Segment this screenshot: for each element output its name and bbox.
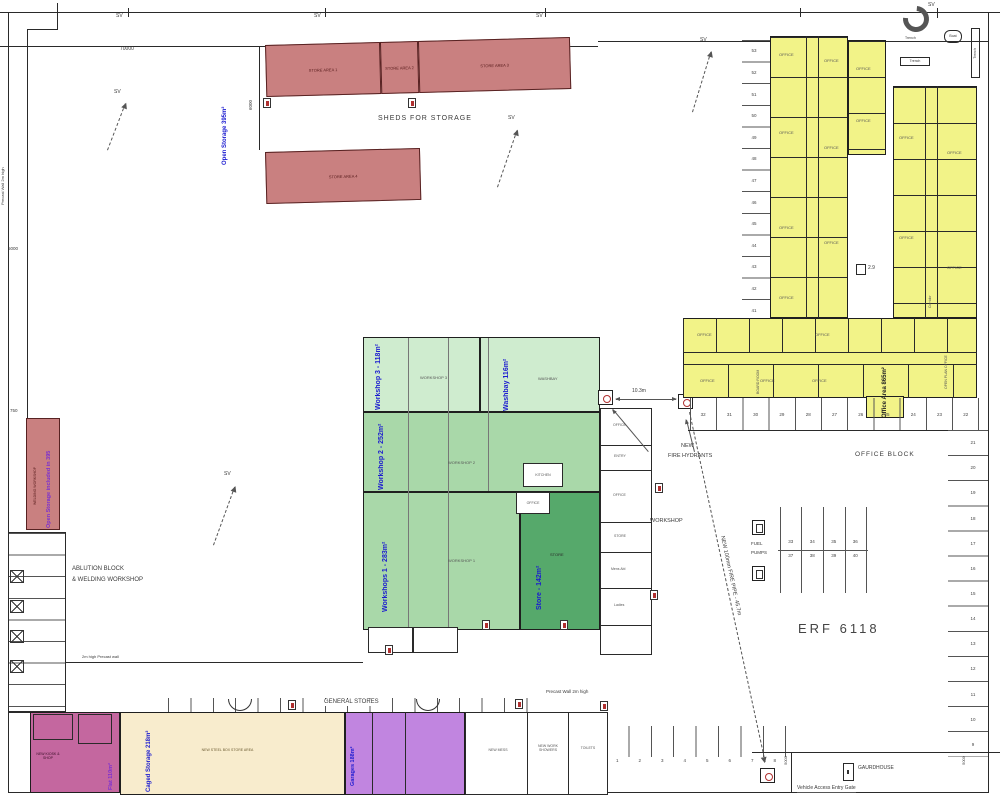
parking-stall-number: 10: [962, 707, 984, 732]
tick: [128, 8, 129, 17]
fire-extinguisher-icon: [482, 620, 490, 630]
store-area-2-label: STORE AREA 2: [385, 65, 414, 71]
guard-plot-line-v: [791, 752, 792, 793]
parking-stall-number: 28: [795, 412, 821, 424]
parking-stall-number: 44: [742, 234, 766, 256]
sv-arrow: [213, 487, 235, 546]
parking-stall-number: 41: [742, 299, 766, 321]
column-line: [448, 338, 449, 629]
store-label-small: STORE: [614, 534, 626, 538]
board-room-label: BOARD ROOM: [756, 358, 760, 394]
store-room-label: STORE: [550, 552, 564, 557]
parking-stall-number: 32: [690, 412, 716, 424]
office-label: OFFICE: [700, 378, 715, 383]
office-label: OFFICE: [779, 130, 794, 135]
staff-rooms-block: [465, 712, 608, 795]
wall-line: [600, 522, 652, 523]
ablution-block: [8, 532, 66, 712]
washbay-label: Washbay 116m²: [503, 345, 510, 411]
boat-label: Boat: [949, 34, 956, 38]
parking-stall-number: 30: [743, 412, 769, 424]
parking-stall-number: 47: [742, 170, 766, 192]
guardhouse-door-dot: [847, 770, 849, 774]
new-fire-hydrants-label-2: FIRE HYDRANTS: [668, 453, 712, 459]
fuel-label-1: FUEL: [751, 541, 763, 546]
precast-wall-mid-line: [60, 662, 363, 663]
precast-wall-bottom-label: Precast Wall 2m high: [546, 689, 588, 694]
workshop-small-label: WORKSHOP: [650, 518, 683, 524]
caged-storage-label: Caged Storage 218m²: [146, 718, 152, 792]
erf-label: ERF 6118: [798, 622, 880, 637]
corridor-wall: [925, 86, 926, 318]
sv-marker: SV: [536, 14, 543, 20]
store-label: Store - 142m²: [536, 530, 543, 610]
sv-marker: SV: [116, 14, 123, 20]
parking-stall-number: 46: [742, 191, 766, 213]
wall-line: [568, 712, 569, 795]
parking-stall-number: 4: [674, 758, 697, 768]
toilet-stall: [10, 600, 24, 613]
wall-line: [600, 588, 652, 589]
parking-stall-number: 13: [962, 631, 984, 656]
fuel-pump-icon: [752, 566, 765, 581]
office-label: OFFICE: [760, 378, 775, 383]
parking-stall-number: 27: [821, 412, 847, 424]
parking-stall-number: 21: [962, 430, 984, 455]
column-line: [408, 338, 409, 629]
open-storage-label: Open Storage 395m²: [222, 95, 228, 165]
office-rooms-top: [683, 318, 977, 352]
parking-stall-number: 24: [900, 412, 926, 424]
dimension-750: 750: [10, 408, 18, 413]
gaurdhouse-label: GAURDHOUSE: [858, 766, 894, 772]
workshop1-room-label: WORKSHOP 1: [448, 558, 475, 563]
parking-stall-number: 38: [802, 553, 824, 558]
kitchen-label: KITCHEN: [535, 473, 550, 477]
dimension-70000: 70000: [120, 47, 134, 53]
tick: [325, 8, 326, 17]
office-label: OFFICE: [856, 118, 871, 123]
tick: [937, 8, 938, 18]
parking-stall-number: 49: [742, 126, 766, 148]
workshop2-zone: [363, 412, 600, 492]
column-line: [488, 338, 489, 491]
parking-stall-number: 11: [962, 682, 984, 707]
parking-stall-number: 8: [764, 758, 787, 768]
parking-office-row: 3231302928272625242322: [690, 412, 979, 424]
office-label: OFFICE: [899, 235, 914, 240]
sv-marker: SV: [224, 472, 231, 478]
parking-edge-line: [688, 430, 988, 431]
store-area-1-label: STORE AREA 1: [309, 67, 338, 73]
fire-extinguisher-icon: [600, 701, 608, 711]
tick: [800, 8, 801, 17]
survey-corner-box: [27, 3, 58, 30]
dimension-arrow-10-3m: [616, 399, 676, 400]
parking-right-column: 2120191817161514131211109: [962, 430, 984, 757]
small-store-room: [413, 627, 458, 653]
office-label: OFFICE: [815, 332, 830, 337]
sv-arrow: [107, 103, 126, 150]
welding-workshop-block: [26, 418, 60, 530]
parking-stall-number: 36: [845, 539, 867, 544]
store-area-2: STORE AREA 2: [380, 41, 420, 94]
workshop2-label: Workshop 2 - 252m²: [378, 416, 385, 490]
parking-bottom-row: 12345678: [606, 758, 786, 768]
parking-stall-number: 12: [962, 656, 984, 681]
toilets-label: TOILETS: [570, 746, 606, 750]
store-area-3: STORE AREA 3: [418, 37, 571, 93]
store-area-4-label: STORE AREA 4: [329, 173, 358, 179]
sv-marker: SV: [314, 14, 321, 20]
parking-stall-number: 20: [962, 455, 984, 480]
fire-pipe-label: NEW 100mm FIRE PIPE - 45.7m: [719, 535, 742, 616]
ablution-block-label-2: & WELDING WORKSHOP: [72, 577, 143, 584]
parking-stall-number: 1: [606, 758, 629, 768]
parking-stall-number: 52: [742, 62, 766, 84]
site-plan: SV SV SV SV SV SV SV SV 70000 6000 5000 …: [0, 0, 1000, 795]
fire-extinguisher-icon: [560, 620, 568, 630]
fuel-label-2: PUMPS: [751, 550, 767, 555]
toilet-stall: [10, 630, 24, 643]
dimension-5000: 5000: [8, 246, 18, 251]
trench-shape: Trench: [900, 57, 930, 66]
office-label: OFFICE: [697, 332, 712, 337]
fire-pipe-line: NEW 100mm FIRE PIPE - 45.7m: [689, 412, 766, 762]
guard-plot-line: [752, 752, 1000, 753]
shed-side-line: [259, 46, 260, 150]
boat-shape: Boat: [944, 30, 962, 43]
boundary-line-right: [988, 12, 989, 793]
wall-line: [600, 625, 652, 626]
corridor-wall: [937, 86, 938, 318]
dimension-10-3m: 10.3m: [632, 389, 646, 395]
office-label: OFFICE: [779, 52, 794, 57]
fire-extinguisher-icon: [515, 699, 523, 709]
office-left-wing: [770, 36, 848, 318]
corridor-wall: [806, 36, 807, 318]
new-kiosk-label: NEW KIOSK & SHOP: [36, 752, 60, 760]
tick: [545, 8, 546, 17]
corridor-wall: [818, 36, 819, 318]
parking-stall-number: 34: [802, 539, 824, 544]
parking-stall-number: 29: [769, 412, 795, 424]
garage-wall: [372, 712, 373, 795]
parking-stall-number: 18: [962, 505, 984, 530]
office-label: OFFICE: [947, 265, 962, 270]
parking-stall-number: 48: [742, 148, 766, 170]
trench-label: Trench: [973, 48, 977, 59]
office-label: OFFICE: [824, 58, 839, 63]
parking-stall-number: 31: [716, 412, 742, 424]
parking-stall-number: 5: [696, 758, 719, 768]
parking-stall-number: 25: [874, 412, 900, 424]
open-storage-included-label: Open Storage included in 395: [46, 428, 52, 528]
parking-stall-number: 17: [962, 531, 984, 556]
boundary-line-left-inner: [27, 30, 28, 418]
new-work-showers-label: NEW WORK SHOWERS: [530, 744, 566, 752]
fire-extinguisher-icon: [408, 98, 416, 108]
fire-extinguisher-icon: [650, 590, 658, 600]
fire-extinguisher-icon: [385, 645, 393, 655]
office-label: OFFICE: [824, 145, 839, 150]
washbay-zone: [480, 337, 600, 412]
parking-stall-number: 19: [962, 480, 984, 505]
precast-wall-mid-label: 2m high Precast wall: [82, 655, 119, 660]
wall-line: [600, 552, 652, 553]
dimension-5000-corner: 5000: [962, 756, 967, 765]
fuel-stall-midline: [778, 550, 868, 551]
parking-stall-number: 33: [780, 539, 802, 544]
mens-abl-label: Mens Abl: [611, 567, 625, 571]
fire-extinguisher-icon: [263, 98, 271, 108]
fire-extinguisher-icon: [655, 483, 663, 493]
ladies-label: Ladies: [614, 603, 624, 607]
parking-stall-number: 37: [780, 553, 802, 558]
fire-hydrant-icon: [760, 768, 775, 783]
parking-stall-number: 35: [823, 539, 845, 544]
flat-room: [33, 714, 73, 740]
sv-marker: SV: [700, 38, 707, 44]
office-label: OFFICE: [812, 378, 827, 383]
boundary-line-top: [0, 12, 1000, 13]
parking-stall-number: 45: [742, 213, 766, 235]
office-room-inset: OFFICE: [516, 492, 550, 514]
parking-stall-number: 23: [926, 412, 952, 424]
toilet-stall: [10, 660, 24, 673]
parking-stall-number: 6: [719, 758, 742, 768]
garage-wall: [405, 712, 406, 795]
trench-label: Trench: [905, 36, 916, 40]
office-block-label: OFFICE BLOCK: [855, 451, 915, 458]
store-area-1: STORE AREA 1: [265, 42, 381, 97]
shed-row: STORE AREA 1 STORE AREA 2 STORE AREA 3: [265, 37, 571, 97]
wall-line: [527, 712, 528, 795]
office-right-wing: [893, 86, 977, 318]
parking-stall-number: 14: [962, 606, 984, 631]
fire-hydrant-icon: [598, 390, 613, 405]
fuel-parking-top: 33343536: [780, 539, 866, 544]
office-label: OFFICE: [527, 501, 540, 505]
sv-arrow: [497, 130, 517, 187]
flat-label: Flat 110m²: [108, 748, 114, 790]
open-plan-office-label: OPEN PLAN OFFICE: [944, 325, 948, 389]
toilet-stall: [10, 570, 24, 583]
ablution-block-label-1: ABLUTION BLOCK: [72, 566, 124, 573]
workshop3-label: Workshop 3 - 118m²: [375, 342, 382, 410]
workshop2-room-label: WORKSHOP 2: [448, 460, 475, 465]
office-label: OFFICE: [824, 240, 839, 245]
parking-stall-number: 16: [962, 556, 984, 581]
sheds-for-storage-label: SHEDS FOR STORAGE: [378, 115, 472, 123]
parking-stall-number: 2: [629, 758, 652, 768]
office-label: OFFICE: [947, 150, 962, 155]
corridor-wall: [683, 352, 977, 353]
parking-stall-number: 39: [823, 553, 845, 558]
stair-box: [856, 264, 866, 275]
fire-extinguisher-icon: [288, 700, 296, 710]
welding-workshop-label: WELDING WORKSHOP: [33, 445, 37, 505]
parking-stall-number: 53: [742, 40, 766, 62]
washbay-room-label: WASHBAY: [538, 376, 558, 381]
vehicle-gate-label: Vehicle Access Entry Gate: [797, 786, 856, 793]
parking-stall-number: 22: [953, 412, 979, 424]
garages-label: Garages 188m²: [350, 728, 356, 786]
office-label: OFFICE: [779, 295, 794, 300]
parking-stall-number: 50: [742, 105, 766, 127]
store-area-4: STORE AREA 4: [265, 148, 421, 204]
new-mess-label: NEW MESS: [478, 748, 518, 752]
level-2-9-label: 2.9: [868, 266, 875, 272]
parking-left-column: 53525150494847464544434241: [742, 40, 766, 321]
office-label: OFFICE: [899, 135, 914, 140]
sv-arrow: [692, 52, 711, 113]
trench-label: Trench: [910, 59, 921, 63]
flat-room: [78, 714, 112, 744]
parking-stall-number: 9: [962, 732, 984, 757]
office-rooms-bottom: [683, 364, 977, 398]
wall-line: [600, 470, 652, 471]
kitchen-room: KITCHEN: [523, 463, 563, 487]
entry-label: ENTRY: [614, 454, 626, 458]
parking-stall-number: 3: [651, 758, 674, 768]
corridor-wall: [683, 364, 977, 365]
workshop1-label: Workshops 1 - 283m²: [382, 522, 389, 612]
trench-shape-vertical: Trench: [971, 28, 980, 78]
parking-stall-number: 40: [845, 553, 867, 558]
corridor-label: Corridor: [928, 278, 932, 308]
office-label: OFFICE: [779, 225, 794, 230]
dimension-6000: 6000: [248, 100, 253, 110]
parking-stall-number: 43: [742, 256, 766, 278]
parking-stall-number: 26: [848, 412, 874, 424]
workshop3-room-label: WORKSHOP 3: [420, 375, 447, 380]
fuel-pump-icon: [752, 520, 765, 535]
steel-box-store-label: NEW STEEL BOX STORE AREA: [195, 748, 260, 752]
general-stores-label: GENERAL STORES: [322, 699, 381, 706]
parking-stall-number: 51: [742, 83, 766, 105]
sv-marker: SV: [928, 3, 935, 9]
caged-storage-block: [120, 712, 345, 795]
parking-stall-number: 7: [741, 758, 764, 768]
office-left-wing-upper: [848, 40, 886, 155]
parking-stall-number: 42: [742, 278, 766, 300]
store-area-3-label: STORE AREA 3: [480, 62, 509, 68]
office-label: OFFICE: [613, 493, 626, 497]
precast-wall-left-label: Precast Wall 2m high: [1, 145, 6, 205]
parking-stall-number: 15: [962, 581, 984, 606]
sv-marker: SV: [114, 90, 121, 96]
sv-marker: SV: [508, 116, 515, 122]
office-label: OFFICE: [856, 66, 871, 71]
fuel-parking-bottom: 37383940: [780, 553, 866, 558]
